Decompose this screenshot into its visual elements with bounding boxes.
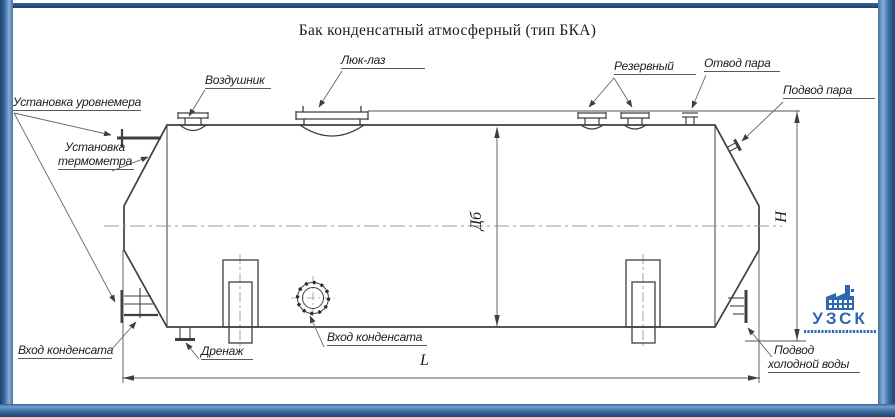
label-steam-inlet: Подвод пара (783, 84, 875, 99)
manhole-nozzle (296, 106, 368, 136)
label-air-vent: Воздушник (205, 74, 271, 89)
condensate-inlet-left-nozzle (122, 288, 158, 323)
cold-water-nozzle (728, 290, 746, 323)
frame-top (0, 3, 895, 8)
label-condensate-inlet-center: Вход конденсата (327, 331, 427, 346)
label-reserve: Резервный (614, 60, 696, 75)
frame-bottom (0, 404, 895, 417)
company-logo: УЗСК (798, 284, 882, 348)
label-drain: Дренаж (201, 345, 253, 360)
dimension-label-height: H (773, 211, 791, 223)
frame-left (0, 0, 13, 417)
reserve-nozzle-1 (578, 112, 606, 129)
label-condensate-inlet-left: Вход конденсата (18, 344, 112, 359)
support-left (223, 260, 258, 343)
drain-nozzle (175, 327, 195, 340)
air-vent-nozzle (178, 112, 208, 131)
label-manhole: Люк-лаз (341, 54, 425, 69)
logo-text: УЗСК (798, 310, 882, 328)
label-thermometer-line1: Установка (65, 141, 125, 154)
condensate-inlet-flange (291, 276, 335, 320)
steam-outlet-nozzle (682, 113, 698, 125)
label-cold-water-line2: холодной воды (768, 358, 860, 373)
label-steam-outlet: Отвод пара (704, 57, 780, 72)
logo-tagline (804, 330, 876, 333)
dimension-length (122, 250, 760, 383)
dimension-label-length: L (420, 352, 429, 370)
centerlines (104, 226, 782, 349)
label-thermometer-line2: термометра (58, 155, 134, 170)
frame-right (878, 0, 895, 417)
dimension-label-diameter: Дб (468, 212, 486, 230)
factory-icon (823, 284, 857, 310)
dimension-diameter (494, 127, 499, 327)
drawing-page: Бак конденсатный атмосферный (тип БКА) (0, 0, 895, 417)
label-level-gauge: Установка уровнемера (13, 96, 141, 111)
reserve-nozzle-2 (621, 112, 649, 129)
